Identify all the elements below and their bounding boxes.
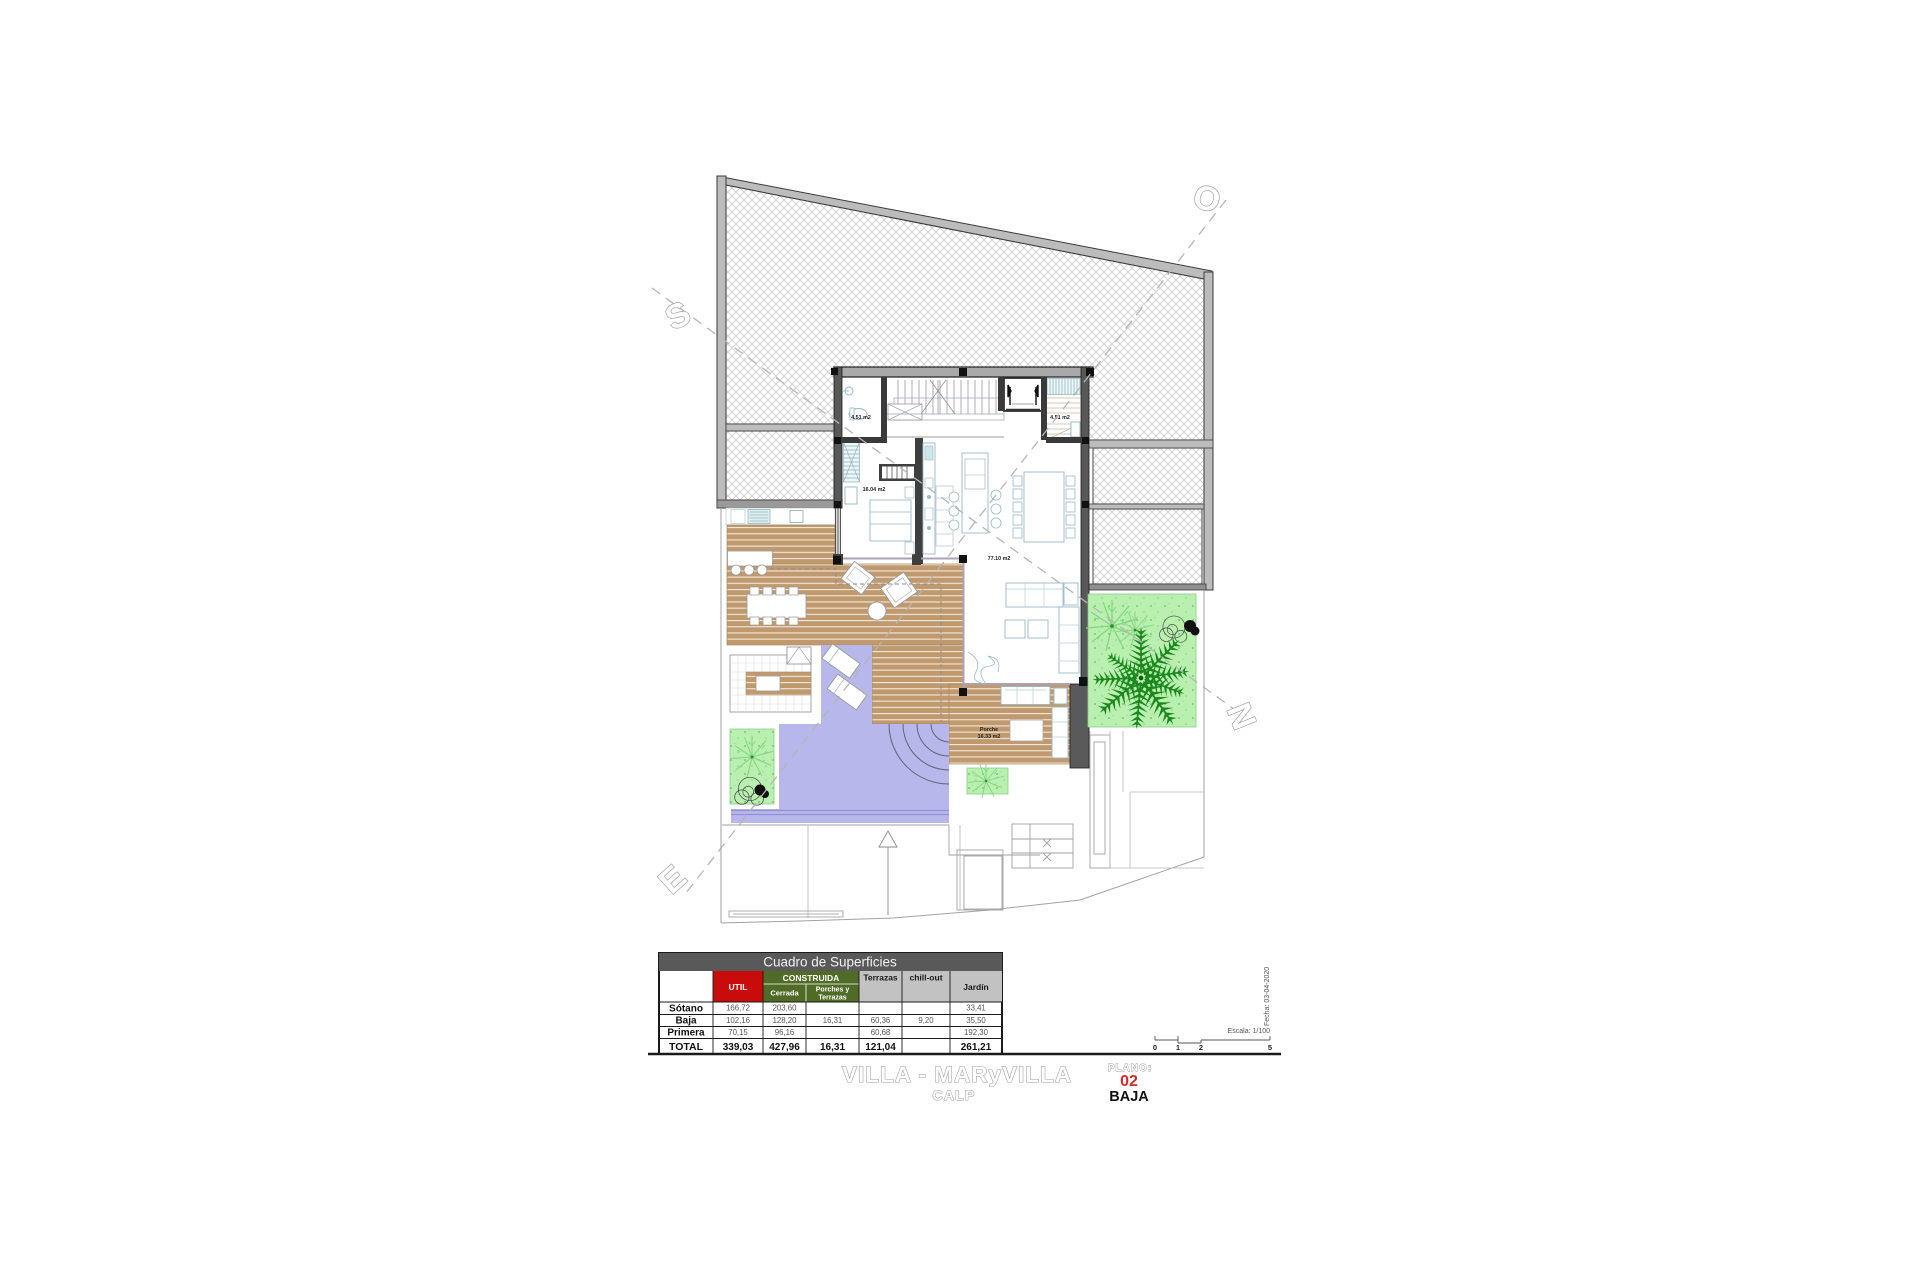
svg-text:Cerrada: Cerrada — [770, 989, 799, 998]
svg-text:BAJA: BAJA — [1109, 1089, 1149, 1105]
svg-text:Primera: Primera — [667, 1028, 705, 1039]
svg-text:60,36: 60,36 — [871, 1016, 891, 1025]
svg-text:Cuadro de Superficies: Cuadro de Superficies — [763, 955, 897, 970]
svg-text:5: 5 — [1268, 1043, 1272, 1052]
svg-text:Sótano: Sótano — [669, 1004, 703, 1015]
svg-text:77.10 m2: 77.10 m2 — [988, 556, 1011, 562]
svg-text:4.51 m2: 4.51 m2 — [851, 415, 871, 421]
svg-text:UTIL: UTIL — [729, 982, 748, 992]
svg-text:166,72: 166,72 — [726, 1004, 750, 1013]
svg-text:Jardín: Jardín — [963, 982, 989, 992]
svg-text:Baja: Baja — [675, 1016, 697, 1027]
svg-text:33,41: 33,41 — [966, 1004, 986, 1013]
svg-text:9,20: 9,20 — [918, 1016, 934, 1025]
svg-text:121,04: 121,04 — [865, 1042, 896, 1053]
svg-text:427,96: 427,96 — [769, 1042, 800, 1053]
svg-text:Porche: Porche — [980, 727, 998, 733]
svg-text:Porches y: Porches y — [816, 987, 850, 994]
svg-text:203,60: 203,60 — [773, 1004, 798, 1013]
svg-text:339,03: 339,03 — [723, 1042, 754, 1053]
svg-text:60,68: 60,68 — [871, 1028, 891, 1037]
svg-text:16.33 m2: 16.33 m2 — [978, 734, 1001, 740]
svg-text:1: 1 — [1176, 1043, 1180, 1052]
svg-text:70,15: 70,15 — [728, 1028, 748, 1037]
svg-text:0: 0 — [1153, 1043, 1157, 1052]
svg-text:96,16: 96,16 — [775, 1028, 795, 1037]
svg-text:261,21: 261,21 — [961, 1042, 992, 1053]
svg-text:CALP: CALP — [933, 1087, 976, 1103]
svg-text:Fecha: 03-04-2020: Fecha: 03-04-2020 — [1264, 967, 1271, 1026]
svg-text:192,30: 192,30 — [964, 1028, 989, 1037]
svg-text:VILLA - MARyVILLA: VILLA - MARyVILLA — [842, 1062, 1072, 1087]
svg-text:128,20: 128,20 — [773, 1016, 798, 1025]
svg-text:CONSTRUIDA: CONSTRUIDA — [783, 973, 840, 983]
svg-text:102,16: 102,16 — [726, 1016, 750, 1025]
svg-text:Terrazas: Terrazas — [818, 995, 846, 1002]
svg-text:16,31: 16,31 — [820, 1042, 845, 1053]
svg-text:16.04 m2: 16.04 m2 — [863, 487, 886, 493]
svg-text:16,31: 16,31 — [823, 1016, 843, 1025]
svg-text:chill-out: chill-out — [909, 973, 942, 983]
svg-text:TOTAL: TOTAL — [669, 1041, 704, 1053]
svg-text:2: 2 — [1199, 1043, 1203, 1052]
svg-text:02: 02 — [1120, 1073, 1138, 1090]
svg-text:4.51 m2: 4.51 m2 — [1050, 415, 1070, 421]
svg-text:Terrazas: Terrazas — [863, 973, 898, 983]
svg-text:35,50: 35,50 — [966, 1016, 986, 1025]
svg-text:Escala: 1/100: Escala: 1/100 — [1228, 1028, 1271, 1035]
